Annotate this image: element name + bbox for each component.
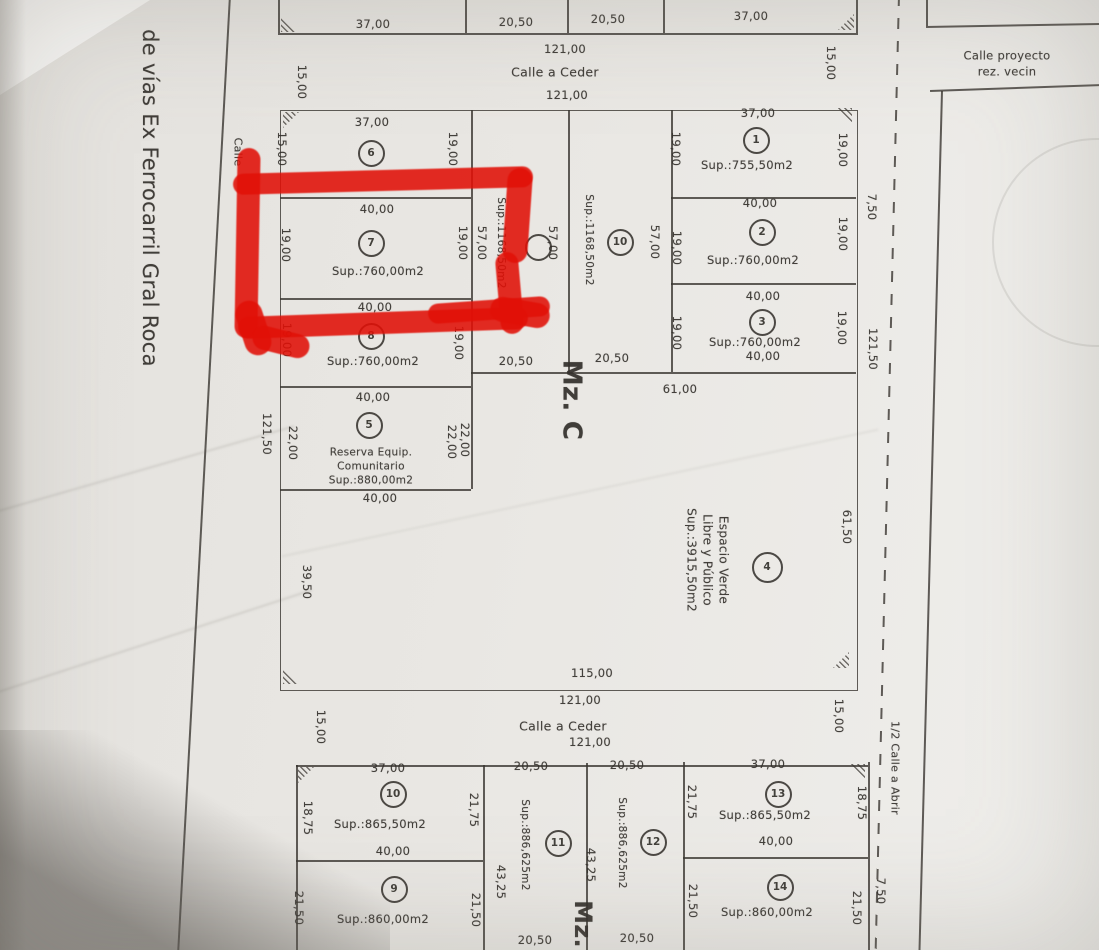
dimension-label: 121,00: [544, 42, 586, 58]
parcel-line: [280, 386, 471, 388]
dimension-label: 20,50: [595, 351, 629, 367]
dimension-label: 57,00: [646, 225, 662, 259]
lot-number-circle: 4: [752, 552, 783, 583]
parcel-line: [483, 765, 485, 950]
dimension-label: 19,00: [444, 132, 460, 166]
corner-hatch-mark: [281, 16, 297, 32]
street-name: Calle a Ceder: [519, 719, 607, 736]
lot-number-circle: 1: [743, 127, 770, 154]
dimension-label: 57,00: [473, 226, 489, 260]
lot-number-circle: 6: [358, 140, 385, 167]
dimension-label: 20,50: [620, 931, 654, 947]
dimension-label: 121,00: [546, 88, 588, 104]
lot-number-circle: 2: [749, 219, 776, 246]
reserva-label: Reserva Equip. Comunitario Sup.:880,00m2: [329, 446, 413, 489]
dimension-label: 115,00: [571, 666, 613, 682]
lot-number-circle: [525, 234, 552, 261]
faint-circle-mark: [992, 138, 1099, 347]
paper-crease: [0, 589, 312, 693]
lot-number-circle: 3: [749, 309, 776, 336]
lot-area-label: Sup.:886,625m2: [518, 799, 532, 890]
lot-number-circle: 7: [358, 230, 385, 257]
dimension-label: 19,00: [834, 217, 850, 251]
dimension-label: 7,50: [863, 194, 879, 221]
dimension-label: 19,00: [668, 316, 684, 350]
dimension-label: 15,00: [293, 65, 309, 99]
dimension-label: 40,00: [759, 834, 793, 850]
dimension-label: 43,25: [582, 848, 598, 882]
dimension-label: 121,00: [569, 735, 611, 751]
lot-number-circle: 5: [356, 412, 383, 439]
dimension-label: 21,50: [684, 884, 700, 918]
parcel-line: [471, 372, 856, 374]
dimension-label: 40,00: [363, 491, 397, 507]
street-name: Calle proyecto rez. vecin: [961, 48, 1053, 79]
dimension-label: 22,00: [284, 426, 300, 460]
lot-number-circle: 12: [640, 829, 667, 856]
dimension-label: 21,50: [467, 893, 483, 927]
parcel-line: [683, 857, 868, 859]
dimension-label: 37,00: [356, 17, 390, 33]
dimension-label: 20,50: [610, 758, 644, 774]
paper-crease: [0, 425, 294, 512]
dimension-label: 20,50: [499, 15, 533, 31]
parcel-line: [856, 0, 858, 33]
dimension-label: 19,00: [668, 231, 684, 265]
lot-number-circle: 14: [767, 874, 794, 901]
corner-hatch-mark: [838, 14, 854, 30]
dimension-label: 40,00: [360, 202, 394, 218]
dimension-label: 21,50: [848, 891, 864, 925]
dimension-label: 19,00: [277, 228, 293, 262]
parcel-line: [926, 23, 1099, 28]
dimension-label: 7,50: [872, 878, 888, 905]
dimension-label: 37,00: [355, 115, 389, 131]
dimension-label: 19,00: [454, 226, 470, 260]
lot-area-label: Sup.:860,00m2: [721, 905, 813, 921]
parcel-line: [663, 0, 665, 33]
lot-area-label: Sup.:1168,50m2: [582, 194, 596, 285]
lot-area-label: Sup.:760,00m2: [332, 264, 424, 280]
corner-hatch-mark: [849, 764, 865, 780]
dimension-label: 20,50: [499, 354, 533, 370]
parcel-line: [926, 0, 928, 26]
lot-area-label: Sup.:755,50m2: [701, 158, 793, 174]
lot-area-label: Sup.:865,50m2: [719, 808, 811, 824]
dimension-label: 37,00: [751, 757, 785, 773]
manzana-label: Mz. C: [553, 360, 588, 441]
parcel-line: [930, 84, 1099, 92]
dimension-label: 22,00: [456, 423, 472, 457]
dimension-label: 61,00: [663, 382, 697, 398]
parcel-line: [918, 91, 942, 950]
dimension-label: 15,00: [273, 132, 289, 166]
dimension-label: 18,75: [853, 786, 869, 820]
plan-photo: 37,0020,5020,5037,0015,0015,00121,00Call…: [0, 0, 1099, 950]
dimension-label: 121,00: [559, 693, 601, 709]
dimension-label: 40,00: [743, 196, 777, 212]
lot-area-label: Sup.:760,00m2: [327, 354, 419, 370]
dimension-label: 61,50: [838, 510, 854, 544]
espacio-verde-label: Espacio Verde Libre y Público Sup.:3915,…: [683, 508, 732, 612]
dimension-label: 19,00: [834, 133, 850, 167]
lot-number-circle: 10: [607, 229, 634, 256]
dimension-label: 40,00: [746, 349, 780, 365]
parcel-line: [568, 110, 570, 372]
dimension-label: 121,50: [864, 328, 880, 370]
lot-number-circle: 11: [545, 830, 572, 857]
dimension-label: 20,50: [518, 933, 552, 949]
parcel-line: [278, 33, 858, 35]
dimension-label: 20,50: [591, 12, 625, 28]
dimension-label: 19,00: [833, 311, 849, 345]
dimension-label: 37,00: [734, 9, 768, 25]
dimension-label: 37,00: [741, 106, 775, 122]
dimension-label: 43,25: [492, 865, 508, 899]
lot-number-circle: 13: [765, 781, 792, 808]
dimension-label: 20,50: [514, 759, 548, 775]
street-name: Calle a Ceder: [511, 65, 599, 82]
dimension-label: 40,00: [746, 289, 780, 305]
dimension-label: 121,50: [258, 413, 274, 455]
manzana-label: Mz.: [567, 900, 599, 948]
parcel-line: [280, 197, 471, 199]
parcel-line: [278, 0, 280, 33]
dimension-label: 15,00: [830, 699, 846, 733]
dimension-label: 39,50: [298, 565, 314, 599]
dimension-label: 15,00: [822, 46, 838, 80]
parcel-line: [671, 283, 856, 285]
lot-area-label: Sup.:886,625m2: [615, 797, 629, 888]
lot-area-label: Sup.:760,00m2: [707, 253, 799, 269]
photo-corner-shadow: [0, 730, 390, 950]
parcel-line: [567, 0, 569, 33]
parcel-line: [465, 0, 467, 33]
dimension-label: 19,00: [667, 132, 683, 166]
dimension-label: 40,00: [356, 390, 390, 406]
railway-label: de vías Ex Ferrocarril Gral Roca: [136, 29, 164, 367]
dimension-label: 21,75: [683, 785, 699, 819]
dimension-label: 21,75: [465, 793, 481, 827]
street-name: 1/2 Calle a Abrir: [887, 721, 902, 815]
